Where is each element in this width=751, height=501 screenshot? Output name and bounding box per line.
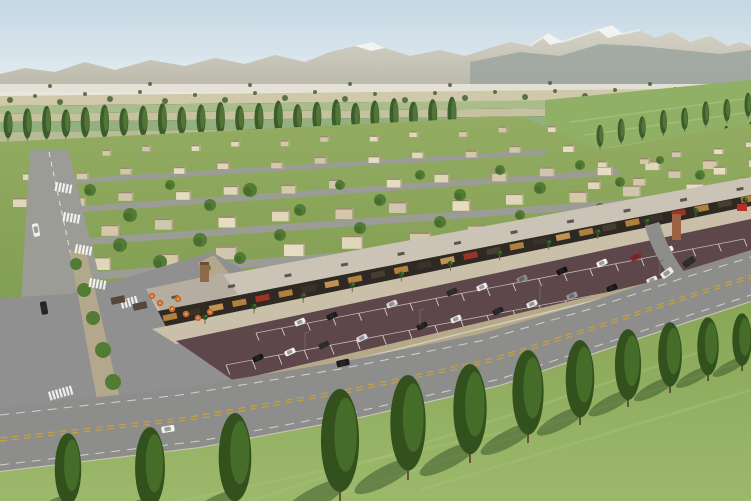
palm-highlight — [401, 272, 403, 274]
entry-monument — [672, 214, 681, 240]
house-side-shade — [295, 185, 297, 194]
house-parapet — [506, 194, 524, 195]
house-parapet — [623, 185, 641, 186]
palm-highlight — [352, 283, 354, 285]
house — [224, 186, 239, 195]
poplar-highlight — [705, 103, 709, 120]
house — [77, 172, 89, 179]
house-side-shade — [361, 236, 363, 249]
house-parapet — [13, 198, 28, 199]
poplar-highlight — [663, 112, 667, 129]
yard-tree-shade — [295, 208, 302, 215]
house — [155, 219, 173, 230]
house-parapet — [342, 236, 363, 237]
distant-tree — [7, 97, 13, 103]
house-side-shade — [417, 131, 419, 137]
house-side-shade — [110, 150, 112, 156]
house-parapet — [669, 170, 682, 171]
house-parapet — [272, 210, 290, 211]
house — [174, 167, 186, 174]
house-parapet — [158, 254, 179, 255]
house — [453, 200, 471, 211]
yard-tree-shade — [375, 198, 382, 205]
aerial-render: Aerial rendering of a desert master-plan… — [0, 0, 751, 501]
distant-tree — [348, 82, 352, 86]
poplar-highlight — [277, 103, 282, 127]
house — [435, 173, 450, 182]
yard-tree-shade — [85, 188, 92, 195]
poplar-highlight — [523, 357, 541, 418]
house-parapet — [563, 145, 575, 146]
palm-tree — [448, 261, 454, 267]
poplar-highlight — [620, 121, 624, 138]
house — [315, 157, 327, 164]
poplar-highlight — [162, 106, 167, 130]
palm-highlight — [499, 251, 501, 253]
house — [714, 148, 724, 154]
yard-tree-shade — [516, 213, 522, 219]
distant-tree — [57, 99, 63, 105]
yard-tree-shade — [114, 243, 122, 251]
distant-tree — [402, 97, 408, 103]
distant-tree — [522, 94, 528, 100]
yard-tree-shade — [235, 256, 242, 263]
distant-tree — [648, 82, 652, 86]
yard-tree-shade — [166, 183, 172, 189]
umbrella-tip — [171, 308, 173, 310]
house — [368, 156, 380, 163]
house-parapet — [746, 141, 751, 142]
house-parapet — [176, 191, 191, 192]
poplar-highlight — [667, 328, 681, 374]
poplar-highlight — [355, 105, 360, 125]
poplar-highlight — [465, 372, 485, 437]
house-side-shade — [611, 166, 613, 175]
house-parapet — [174, 167, 186, 168]
house — [409, 131, 418, 137]
poplar-highlight — [230, 421, 249, 484]
house — [284, 243, 305, 256]
house-body — [570, 192, 588, 203]
aerial-render-canvas — [0, 0, 751, 501]
house-parapet — [315, 157, 327, 158]
house-body — [623, 185, 641, 196]
house — [746, 141, 751, 147]
house-parapet — [570, 192, 588, 193]
house-side-shade — [132, 192, 134, 201]
distant-tree — [282, 95, 288, 101]
house-body — [389, 202, 407, 213]
distant-tree — [107, 96, 113, 102]
house-side-shade — [639, 185, 641, 196]
poplar-highlight — [335, 102, 340, 126]
poplar-highlight — [26, 111, 31, 133]
palm-highlight — [548, 240, 550, 242]
yard-tree-shade — [355, 226, 362, 233]
house-side-shade — [84, 197, 86, 206]
house-parapet — [687, 183, 705, 184]
umbrella-tip — [209, 311, 211, 313]
house-side-shade — [237, 186, 239, 195]
poplar-highlight — [393, 101, 398, 125]
house-side-shade — [448, 173, 450, 182]
house-side-shade — [325, 157, 327, 164]
house — [498, 126, 507, 132]
poplar-highlight — [7, 113, 12, 133]
poplar-highlight — [642, 118, 646, 134]
poplar-highlight — [146, 434, 164, 492]
yard-tree-shade — [496, 168, 502, 174]
house — [640, 158, 650, 164]
house — [459, 131, 468, 137]
poplar-highlight — [624, 335, 639, 386]
house-parapet — [155, 219, 173, 220]
house — [142, 145, 151, 151]
house-side-shade — [199, 145, 201, 151]
distant-tree — [33, 94, 37, 98]
distant-tree — [222, 97, 228, 103]
house-body — [336, 208, 354, 219]
yard-tree-shade — [535, 186, 542, 193]
house-parapet — [77, 172, 89, 173]
house-side-shade — [189, 191, 191, 200]
palm-highlight — [647, 219, 649, 221]
poplar-highlight — [334, 398, 356, 472]
house-side-shade — [680, 170, 682, 178]
house-side-shade — [235, 217, 237, 228]
house — [102, 225, 120, 236]
house — [336, 208, 354, 219]
house-body — [155, 219, 173, 230]
house-side-shade — [184, 167, 186, 174]
house-parapet — [281, 185, 296, 186]
house-parapet — [387, 178, 402, 179]
yard-tree-shade — [336, 183, 342, 189]
house-parapet — [102, 225, 120, 226]
house — [219, 217, 237, 228]
house-body — [219, 217, 237, 228]
palm-tree — [595, 229, 601, 235]
house-side-shade — [555, 126, 557, 132]
palm-tree — [693, 208, 699, 214]
tower-cap — [200, 262, 209, 265]
house-parapet — [435, 173, 450, 174]
distant-tree — [553, 89, 557, 93]
house-side-shade — [476, 150, 478, 157]
house — [563, 145, 575, 152]
house-parapet — [284, 243, 305, 244]
palm-tree — [399, 272, 405, 278]
median-tree — [105, 374, 121, 390]
poplar-highlight — [104, 107, 109, 131]
poplar-highlight — [576, 347, 593, 402]
house-side-shade — [288, 140, 290, 146]
house-side-shade — [520, 146, 522, 153]
house-parapet — [633, 178, 646, 179]
house-side-shade — [379, 156, 381, 163]
house-side-shade — [377, 135, 379, 141]
median-tree — [70, 258, 82, 270]
distant-tree — [313, 90, 317, 94]
distant-tree — [548, 81, 552, 85]
house-parapet — [703, 160, 718, 161]
house-body — [284, 243, 305, 256]
house — [598, 166, 613, 175]
house — [231, 141, 240, 147]
house-side-shade — [405, 202, 407, 213]
red-sign — [737, 204, 747, 211]
poplar-highlight — [181, 109, 186, 129]
poplar-highlight — [684, 110, 688, 126]
poplar-highlight — [219, 105, 224, 129]
yard-tree-shade — [154, 260, 162, 268]
house-parapet — [118, 192, 133, 193]
house-side-shade — [109, 257, 111, 270]
palm-tree — [251, 304, 257, 310]
house — [218, 162, 230, 169]
poplar-highlight — [200, 107, 205, 129]
distant-tree — [193, 93, 197, 97]
house-side-shade — [328, 136, 330, 142]
house — [118, 192, 133, 201]
umbrella-tip — [177, 298, 179, 300]
house-side-shade — [722, 148, 724, 154]
poplar-highlight — [739, 318, 750, 356]
house-body — [506, 194, 524, 205]
house-parapet — [389, 202, 407, 203]
palm-highlight — [205, 315, 207, 317]
house-parapet — [336, 208, 354, 209]
house-body — [453, 200, 471, 211]
yard-tree-shade — [194, 238, 202, 246]
distant-tree — [613, 88, 617, 92]
palm-tree — [202, 314, 208, 320]
house-parapet — [466, 150, 478, 151]
poplar-highlight — [599, 127, 603, 143]
house — [412, 151, 424, 158]
house-body — [102, 225, 120, 236]
palm-tree — [644, 218, 650, 224]
umbrella-tip — [151, 295, 153, 297]
house-side-shade — [648, 158, 650, 164]
house-side-shade — [131, 168, 133, 175]
house — [669, 170, 682, 178]
distant-tree — [148, 82, 152, 86]
house-side-shade — [228, 162, 230, 169]
palm-highlight — [696, 208, 698, 210]
distant-tree — [493, 90, 497, 94]
house-side-shade — [599, 181, 601, 189]
house-side-shade — [239, 141, 241, 147]
distant-tree — [448, 83, 452, 87]
house-side-shade — [288, 210, 290, 221]
distant-tree — [162, 98, 168, 104]
house-side-shade — [469, 200, 471, 211]
distant-tree — [248, 83, 252, 87]
palm-tree — [742, 197, 748, 203]
yard-tree-shade — [124, 213, 132, 221]
poplar-highlight — [374, 103, 379, 125]
house-side-shade — [87, 172, 89, 179]
house-parapet — [540, 167, 555, 168]
yard-tree-shade — [275, 233, 282, 240]
house — [281, 185, 296, 194]
house-side-shade — [466, 131, 468, 137]
house — [192, 145, 201, 151]
house-side-shade — [725, 167, 727, 175]
house — [320, 136, 329, 142]
house-parapet — [412, 151, 424, 152]
house-parapet — [120, 168, 132, 169]
yard-tree-shade — [205, 203, 212, 210]
house-side-shade — [118, 225, 120, 236]
palm-tree — [349, 282, 355, 288]
house — [281, 140, 290, 146]
palm-highlight — [450, 262, 452, 264]
house — [509, 146, 521, 153]
poplar-highlight — [747, 95, 751, 112]
palm-highlight — [303, 294, 305, 296]
house-side-shade — [282, 161, 284, 168]
house — [370, 135, 379, 141]
house-parapet — [271, 161, 283, 162]
house-parapet — [219, 217, 237, 218]
poplar-highlight — [239, 108, 244, 128]
umbrella-tip — [197, 317, 199, 319]
yard-tree-shade — [656, 159, 661, 164]
house — [588, 181, 601, 189]
house-side-shade — [506, 172, 508, 181]
house — [506, 194, 524, 205]
house — [598, 161, 608, 167]
house — [103, 150, 112, 156]
distant-tree — [48, 84, 52, 88]
poplar-highlight — [258, 106, 263, 128]
poplar-highlight — [65, 112, 70, 132]
house — [272, 210, 290, 221]
house-parapet — [714, 167, 727, 168]
distant-tree — [342, 96, 348, 102]
poplar-highlight — [705, 322, 718, 364]
poplar-highlight — [316, 104, 321, 126]
distant-tree — [138, 90, 142, 94]
distant-tree — [373, 92, 377, 96]
house — [13, 198, 28, 207]
yard-tree-shade — [696, 173, 702, 179]
house — [672, 151, 682, 157]
house — [176, 191, 191, 200]
house — [120, 168, 132, 175]
house-side-shade — [303, 243, 305, 256]
yard-tree-shade — [416, 173, 422, 179]
palm-tree — [546, 240, 552, 246]
yard-tree-shade — [616, 180, 622, 186]
distant-tree — [462, 95, 468, 101]
house-body — [342, 236, 363, 249]
house-side-shade — [400, 178, 402, 187]
house-side-shade — [171, 219, 173, 230]
yard-tree-shade — [435, 220, 442, 227]
median-tree — [86, 311, 100, 325]
palm-tree — [300, 293, 306, 299]
house-side-shade — [553, 167, 555, 176]
house-side-shade — [422, 151, 424, 158]
median-tree — [95, 342, 111, 358]
poplar-highlight — [403, 383, 424, 452]
yard-tree-shade — [455, 193, 462, 200]
house-side-shade — [606, 161, 608, 167]
yard-tree-shade — [244, 188, 252, 196]
house — [342, 236, 363, 249]
poplar-highlight — [142, 108, 147, 130]
umbrella-tip — [185, 313, 187, 315]
distant-tree — [253, 91, 257, 95]
house-parapet — [588, 181, 601, 182]
house-side-shade — [645, 178, 647, 186]
palm-highlight — [254, 304, 256, 306]
palm-highlight — [598, 230, 600, 232]
house — [466, 150, 478, 157]
house-side-shade — [352, 208, 354, 219]
poplar-highlight — [726, 101, 730, 117]
palm-tree — [497, 250, 503, 256]
house — [389, 202, 407, 213]
umbrella-tip — [159, 302, 161, 304]
house — [548, 126, 557, 132]
house-body — [272, 210, 290, 221]
house — [714, 167, 727, 175]
house-parapet — [216, 246, 237, 247]
house-side-shade — [149, 145, 151, 151]
house-parapet — [509, 146, 521, 147]
poplar-highlight — [64, 439, 80, 490]
house-parapet — [410, 233, 431, 234]
distant-tree — [433, 91, 437, 95]
poplar-highlight — [84, 110, 89, 132]
house-side-shade — [522, 194, 524, 205]
house — [540, 167, 555, 176]
poplar-highlight — [297, 107, 302, 127]
house — [570, 192, 588, 203]
house — [623, 185, 641, 196]
house-parapet — [224, 186, 239, 187]
house-side-shade — [573, 145, 575, 152]
poplar-highlight — [46, 109, 51, 133]
poplar-highlight — [123, 110, 128, 130]
house-parapet — [368, 156, 380, 157]
house — [387, 178, 402, 187]
house-side-shade — [680, 151, 682, 157]
house — [271, 161, 283, 168]
house-parapet — [218, 162, 230, 163]
yard-tree-shade — [576, 163, 582, 169]
distant-tree — [83, 92, 87, 96]
palm-highlight — [745, 198, 747, 200]
house-side-shade — [506, 126, 508, 132]
house — [633, 178, 646, 186]
house-side-shade — [586, 192, 588, 203]
poplar-highlight — [412, 104, 417, 124]
